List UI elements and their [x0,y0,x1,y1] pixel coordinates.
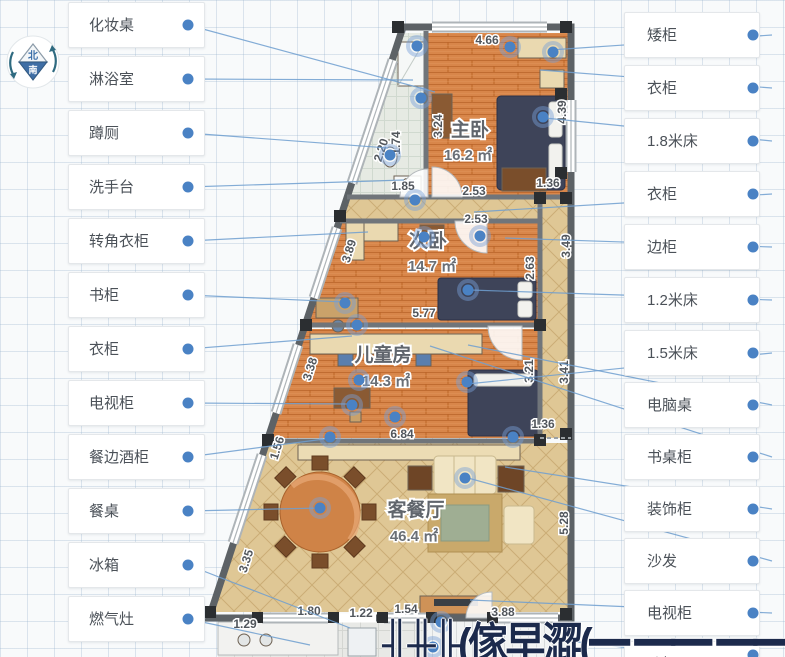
label-text: 书桌柜 [647,449,692,466]
svg-text:1.74: 1.74 [389,131,403,155]
svg-text:1.22: 1.22 [349,606,373,620]
svg-text:1.85: 1.85 [391,179,415,193]
label-desk-cabinet[interactable]: 书桌柜 [624,434,760,480]
chair [416,354,431,366]
tv-cabinet-kids [334,388,370,408]
label-text: 餐边酒柜 [89,449,149,466]
label-text: 1.2米床 [647,292,698,309]
label-text: 洗手台 [89,179,134,196]
watermark: ╢╫╟(傢早澀(━ ━━ ━━ ━遭 [382,608,785,657]
label-text: 蹲厕 [89,125,119,142]
svg-text:2.63: 2.63 [523,256,537,280]
svg-text:4.66: 4.66 [475,33,499,47]
label-corner-wardrobe[interactable]: 转角衣柜 [68,218,205,264]
label-text: 装饰柜 [647,501,692,518]
svg-text:16.2 ㎡: 16.2 ㎡ [444,146,492,164]
floorplan-page: 4.66 2.20 1.74 3.24 1.85 2.53 2.53 3.89 … [0,0,785,657]
label-text: 衣柜 [647,186,677,203]
label-tv-cabinet-left[interactable]: 电视柜 [68,380,205,426]
label-text: 电视柜 [89,395,134,412]
armchair [504,506,534,544]
label-text: 矮柜 [647,27,677,44]
label-text: 冰箱 [89,557,119,574]
label-text: 沙发 [647,553,677,570]
label-text: 电脑桌 [647,397,692,414]
label-squat-toilet[interactable]: 蹲厕 [68,110,205,156]
label-sideboard[interactable]: 餐边酒柜 [68,434,205,480]
label-text: 化妆桌 [89,17,134,34]
label-text: 书柜 [89,287,119,304]
low-cabinet [518,38,566,58]
svg-text:主卧: 主卧 [451,119,489,141]
svg-text:次卧: 次卧 [409,229,447,252]
stool [350,412,361,422]
svg-text:2.53: 2.53 [462,184,486,198]
chair [338,354,353,366]
label-gas-stove[interactable]: 燃气灶 [68,596,205,642]
svg-text:14.3 ㎡: 14.3 ㎡ [362,372,410,390]
label-text: 1.8米床 [647,133,698,150]
label-decor-cabinet[interactable]: 装饰柜 [624,486,760,532]
fridge [348,628,376,656]
decor-cabinet [408,466,432,490]
label-makeup-table[interactable]: 化妆桌 [68,2,205,48]
svg-text:3.24: 3.24 [431,114,445,138]
compass-north-icon[interactable]: 北 南 [5,34,61,90]
label-low-cabinet[interactable]: 矮柜 [624,12,760,58]
label-wardrobe-master[interactable]: 衣柜 [624,65,760,111]
label-text: 餐桌 [89,503,119,520]
label-text: 淋浴室 [89,71,134,88]
svg-text:北: 北 [28,49,38,62]
label-sofa[interactable]: 沙发 [624,538,760,584]
label-computer-desk[interactable]: 电脑桌 [624,382,760,428]
label-text: 1.5米床 [647,345,698,362]
label-wardrobe-2[interactable]: 衣柜 [624,171,760,217]
label-text: 衣柜 [89,341,119,358]
svg-text:儿童房: 儿童房 [353,343,411,366]
svg-text:3.49: 3.49 [559,234,573,258]
label-text: 转角衣柜 [89,233,149,250]
svg-text:14.7 ㎡: 14.7 ㎡ [408,257,456,275]
label-wash-basin[interactable]: 洗手台 [68,164,205,210]
svg-text:1.36: 1.36 [536,176,560,190]
svg-text:5.77: 5.77 [412,306,436,320]
nightstand [540,70,564,88]
label-bed-18m[interactable]: 1.8米床 [624,118,760,164]
label-text: 燃气灶 [89,611,134,628]
svg-text:6.84: 6.84 [390,427,414,441]
label-bed-12m[interactable]: 1.2米床 [624,277,760,323]
label-fridge[interactable]: 冰箱 [68,542,205,588]
label-side-cabinet[interactable]: 边柜 [624,224,760,270]
svg-text:南: 南 [28,64,37,75]
label-text: 衣柜 [647,80,677,97]
label-text: 边柜 [647,239,677,256]
label-bed-15m[interactable]: 1.5米床 [624,330,760,376]
svg-text:1.36: 1.36 [531,417,555,431]
label-wardrobe-left[interactable]: 衣柜 [68,326,205,372]
label-bookcase[interactable]: 书柜 [68,272,205,318]
coffee-table [441,505,489,541]
svg-text:46.4 ㎡: 46.4 ㎡ [390,527,438,545]
sofa [434,456,496,494]
label-dining-table[interactable]: 餐桌 [68,488,205,534]
svg-text:2.53: 2.53 [464,212,488,226]
svg-text:客餐厅: 客餐厅 [387,498,444,521]
label-shower-room[interactable]: 淋浴室 [68,56,205,102]
svg-text:5.28: 5.28 [557,511,571,535]
